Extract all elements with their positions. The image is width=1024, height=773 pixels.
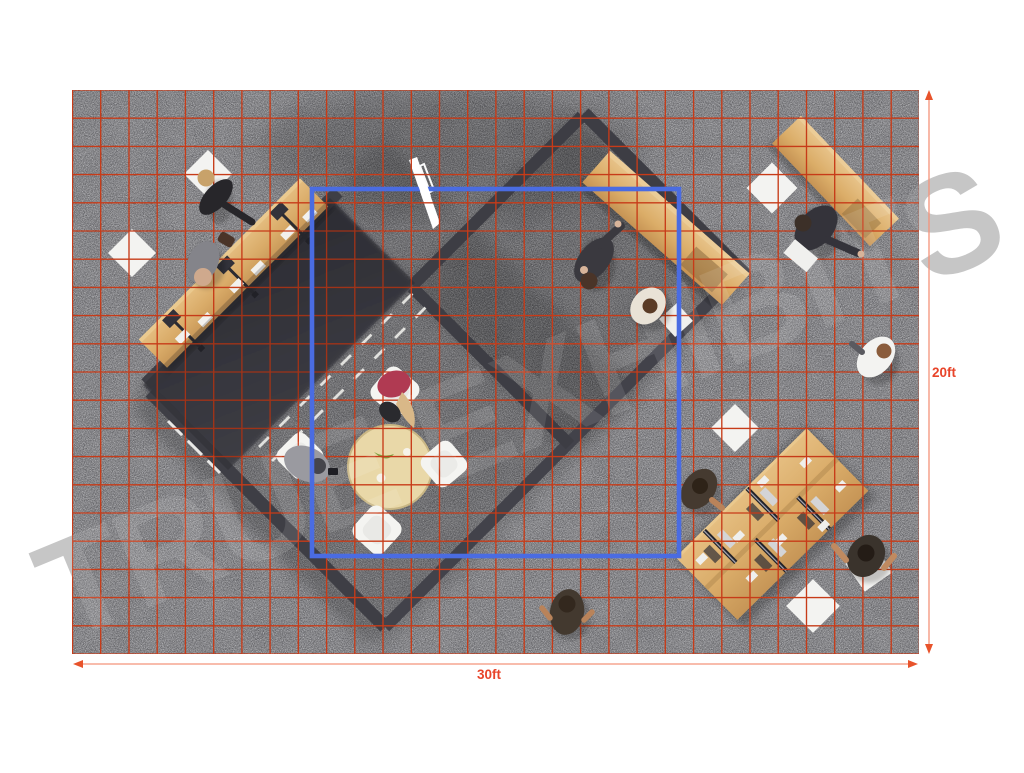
svg-text:30ft: 30ft xyxy=(477,667,502,682)
svg-text:20ft: 20ft xyxy=(932,365,957,380)
